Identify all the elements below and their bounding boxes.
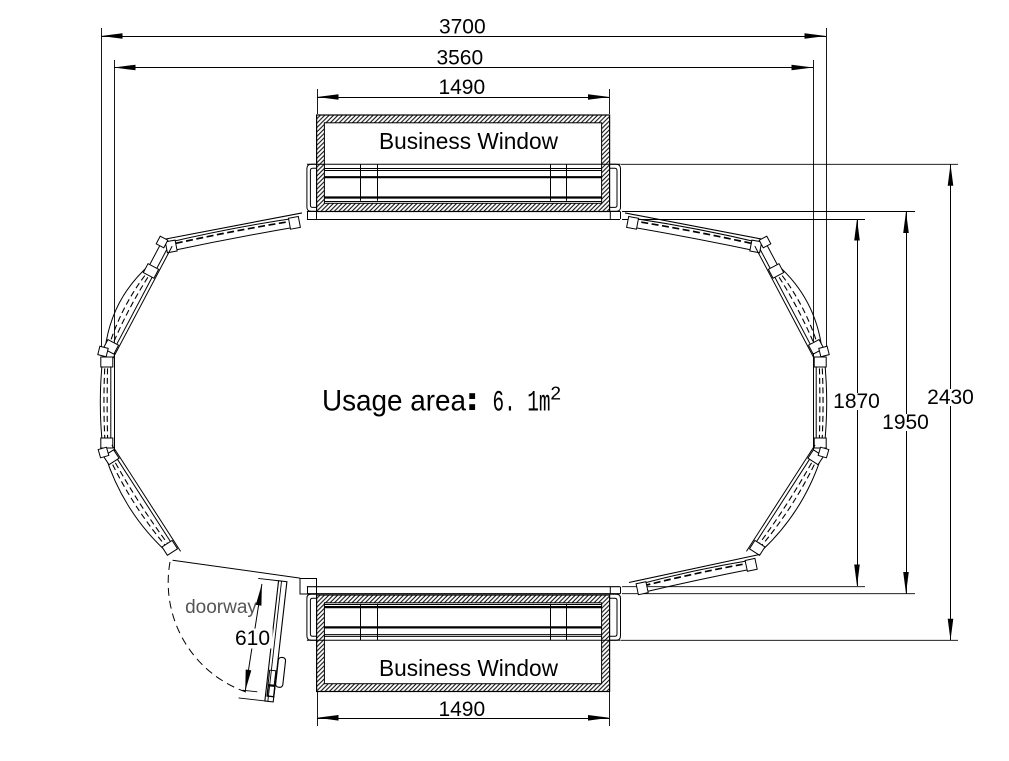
svg-text:1870: 1870 [833,390,880,413]
svg-text:6. 1m: 6. 1m [493,386,551,420]
svg-text:3560: 3560 [436,47,483,70]
svg-text:Business Window: Business Window [379,128,559,154]
svg-text:doorway: doorway [185,597,257,618]
svg-text:3700: 3700 [439,16,486,39]
svg-text:1490: 1490 [438,76,485,99]
svg-text:1950: 1950 [882,411,929,434]
svg-text:1490: 1490 [438,698,485,721]
svg-text:610: 610 [235,627,270,650]
svg-text:Business Window: Business Window [379,655,559,681]
svg-text:2: 2 [550,384,561,406]
svg-text:2430: 2430 [927,386,974,409]
svg-text:Usage area: Usage area [322,384,467,417]
